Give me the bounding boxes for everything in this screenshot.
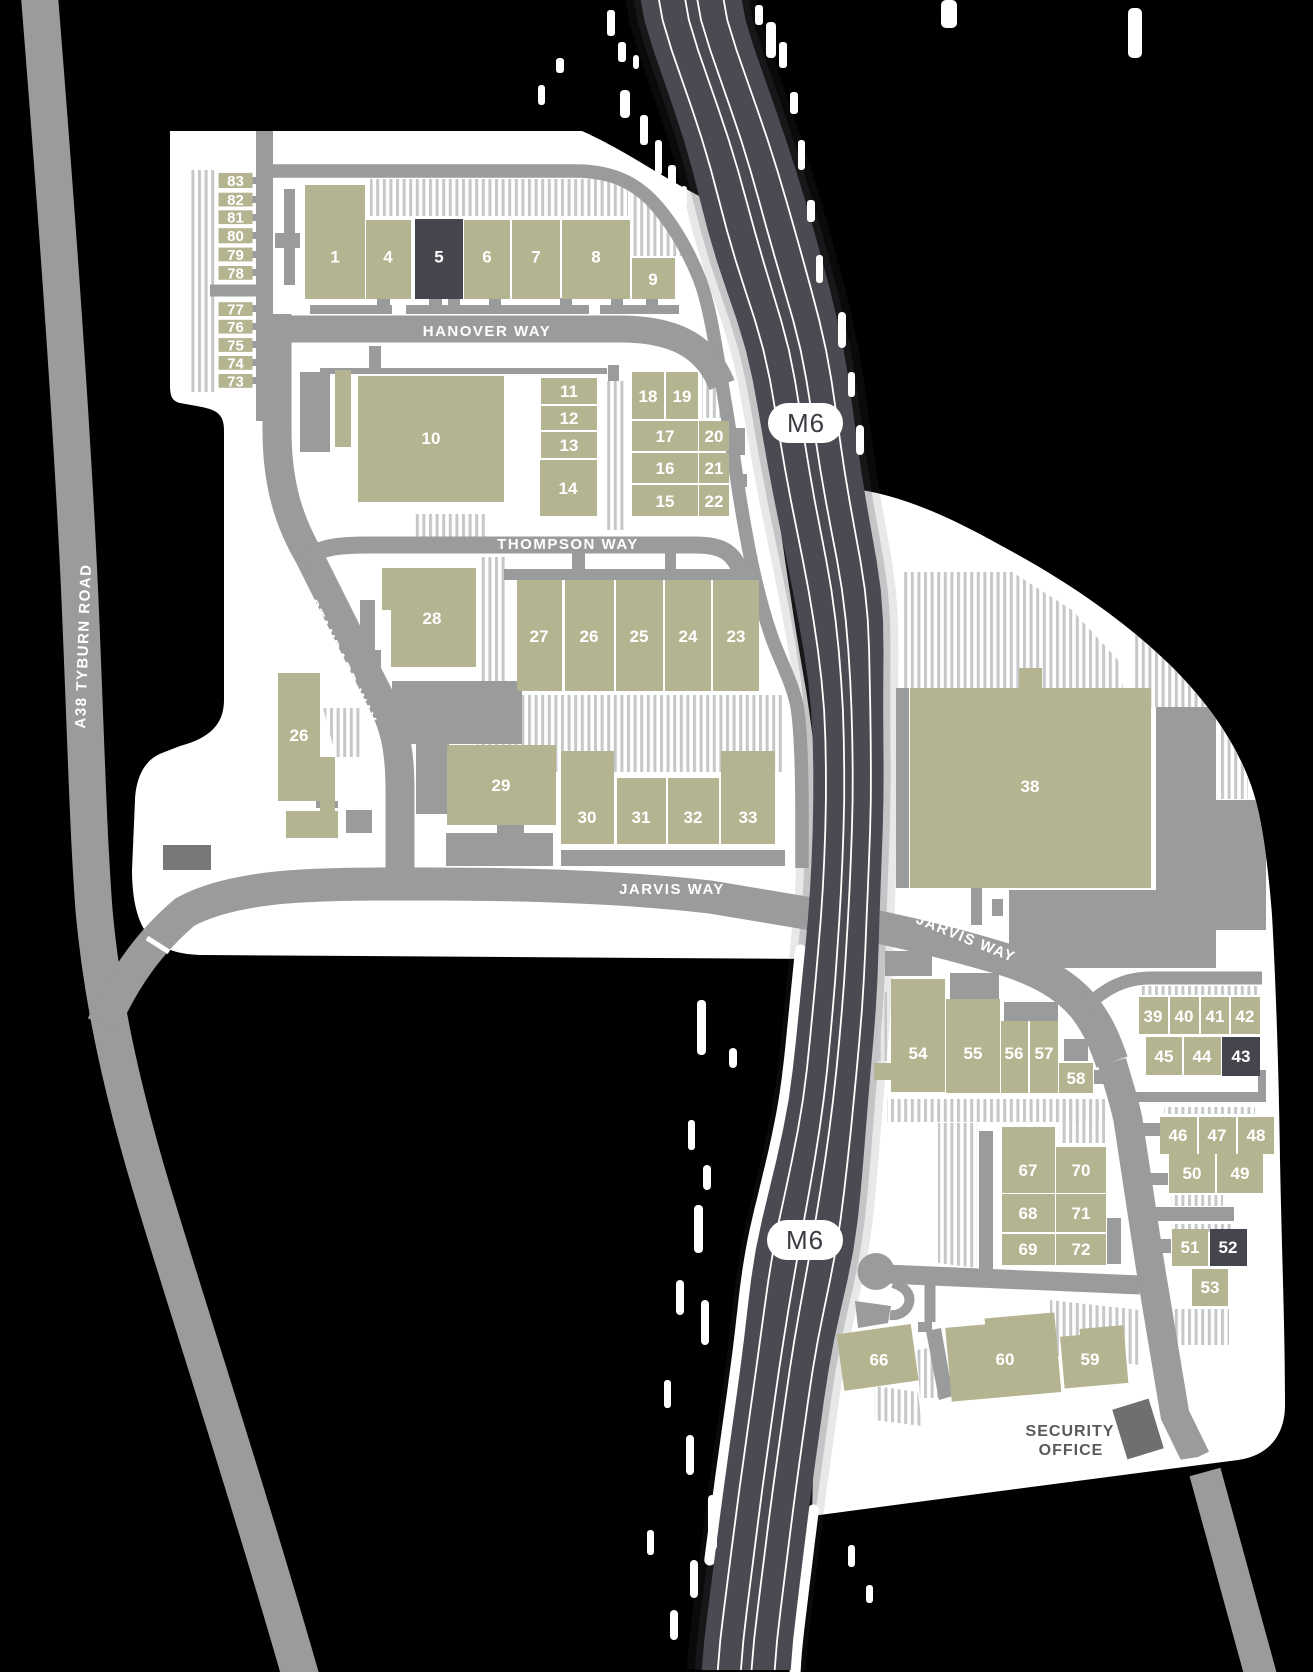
svg-text:67: 67 — [1019, 1161, 1038, 1180]
svg-text:10: 10 — [422, 429, 441, 448]
svg-text:23: 23 — [727, 627, 746, 646]
svg-text:28: 28 — [423, 609, 442, 628]
svg-text:78: 78 — [227, 265, 244, 282]
svg-text:70: 70 — [1072, 1161, 1091, 1180]
svg-text:7: 7 — [531, 248, 540, 267]
svg-text:53: 53 — [1201, 1278, 1220, 1297]
svg-text:42: 42 — [1236, 1007, 1255, 1026]
svg-text:74: 74 — [227, 355, 244, 372]
svg-text:M6: M6 — [787, 408, 825, 438]
svg-text:55: 55 — [964, 1044, 983, 1063]
svg-text:57: 57 — [1035, 1044, 1054, 1063]
svg-text:50: 50 — [1183, 1164, 1202, 1183]
svg-text:26: 26 — [580, 627, 599, 646]
svg-text:27: 27 — [530, 627, 549, 646]
svg-text:77: 77 — [227, 302, 244, 319]
svg-text:5: 5 — [434, 248, 443, 267]
svg-text:54: 54 — [909, 1044, 928, 1063]
svg-text:1: 1 — [330, 248, 339, 267]
svg-text:JARVIS WAY: JARVIS WAY — [619, 881, 725, 898]
svg-text:46: 46 — [1169, 1126, 1188, 1145]
svg-text:76: 76 — [227, 319, 244, 336]
svg-text:16: 16 — [656, 459, 675, 478]
svg-text:19: 19 — [673, 387, 692, 406]
svg-text:69: 69 — [1019, 1240, 1038, 1259]
svg-text:OFFICE: OFFICE — [1039, 1442, 1104, 1459]
svg-text:83: 83 — [227, 173, 244, 190]
svg-text:20: 20 — [705, 427, 724, 446]
svg-text:45: 45 — [1155, 1047, 1174, 1066]
svg-text:25: 25 — [630, 627, 649, 646]
svg-text:6: 6 — [482, 248, 491, 267]
svg-text:71: 71 — [1072, 1204, 1091, 1223]
svg-text:26: 26 — [290, 726, 309, 745]
svg-text:38: 38 — [1021, 777, 1040, 796]
svg-text:21: 21 — [705, 459, 724, 478]
svg-text:29: 29 — [492, 776, 511, 795]
svg-text:75: 75 — [227, 337, 244, 354]
svg-text:22: 22 — [705, 492, 724, 511]
svg-text:72: 72 — [1072, 1240, 1091, 1259]
svg-text:60: 60 — [996, 1350, 1015, 1369]
svg-text:11: 11 — [560, 382, 578, 401]
svg-text:41: 41 — [1206, 1007, 1225, 1026]
svg-text:73: 73 — [227, 373, 244, 390]
svg-text:44: 44 — [1193, 1047, 1212, 1066]
svg-text:43: 43 — [1232, 1047, 1251, 1066]
svg-text:48: 48 — [1247, 1126, 1266, 1145]
svg-text:80: 80 — [227, 228, 244, 245]
svg-text:66: 66 — [870, 1351, 889, 1370]
svg-text:14: 14 — [559, 479, 578, 498]
svg-text:13: 13 — [560, 436, 579, 455]
svg-text:31: 31 — [632, 808, 651, 827]
svg-text:56: 56 — [1005, 1044, 1024, 1063]
svg-text:81: 81 — [227, 210, 244, 227]
svg-text:68: 68 — [1019, 1204, 1038, 1223]
svg-text:THOMPSON WAY: THOMPSON WAY — [497, 536, 639, 553]
svg-text:58: 58 — [1067, 1069, 1086, 1088]
svg-text:9: 9 — [648, 270, 657, 289]
svg-text:30: 30 — [578, 808, 597, 827]
svg-text:12: 12 — [560, 409, 579, 428]
svg-text:47: 47 — [1208, 1126, 1227, 1145]
svg-text:SECURITY: SECURITY — [1026, 1423, 1115, 1440]
svg-text:17: 17 — [656, 427, 675, 446]
svg-text:51: 51 — [1181, 1238, 1200, 1257]
svg-text:HANOVER WAY: HANOVER WAY — [423, 323, 551, 340]
svg-text:18: 18 — [639, 387, 658, 406]
svg-text:59: 59 — [1081, 1350, 1100, 1369]
svg-text:4: 4 — [383, 248, 393, 267]
svg-text:52: 52 — [1219, 1238, 1238, 1257]
svg-text:32: 32 — [684, 808, 703, 827]
svg-text:79: 79 — [227, 247, 244, 264]
svg-text:40: 40 — [1175, 1007, 1194, 1026]
svg-text:8: 8 — [591, 248, 600, 267]
svg-text:82: 82 — [227, 192, 244, 209]
svg-text:24: 24 — [679, 627, 698, 646]
svg-text:39: 39 — [1144, 1007, 1163, 1026]
svg-text:M6: M6 — [786, 1225, 824, 1255]
svg-text:15: 15 — [656, 492, 675, 511]
svg-text:49: 49 — [1231, 1164, 1250, 1183]
svg-text:33: 33 — [739, 808, 758, 827]
